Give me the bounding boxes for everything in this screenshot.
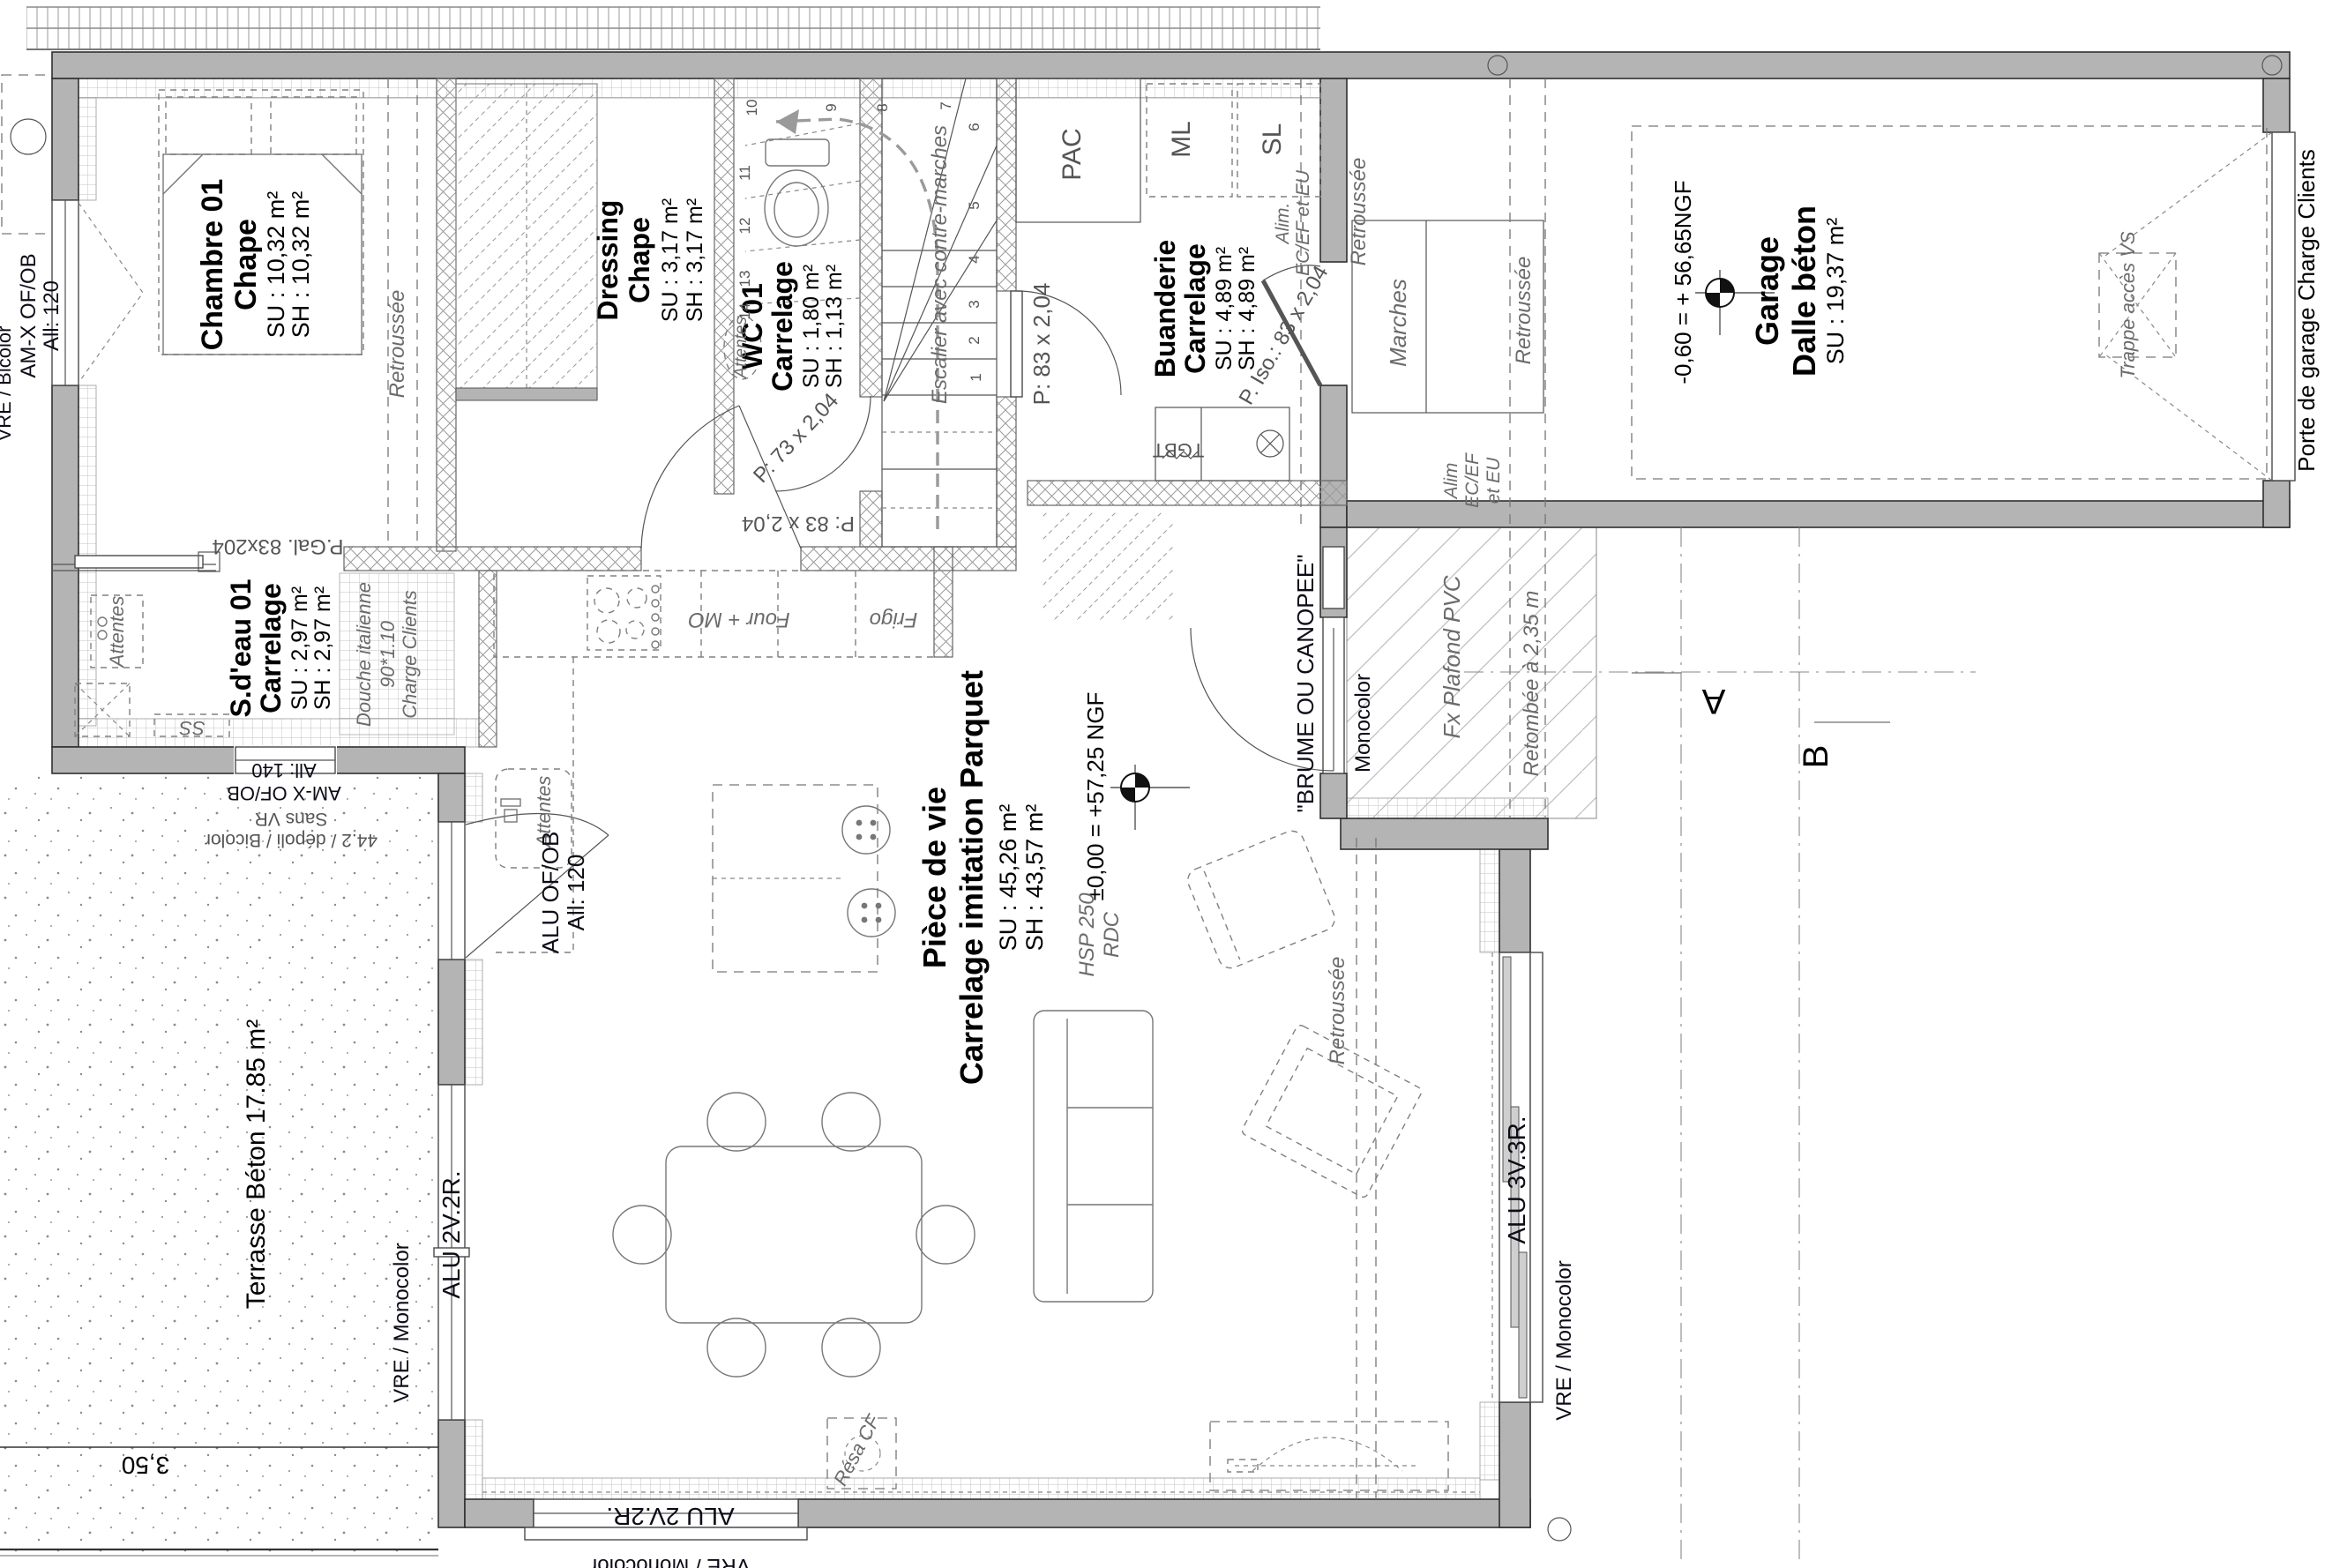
room-wc-finish: Carrelage: [766, 261, 798, 392]
room-living-sh: SH : 43,57 m²: [1021, 804, 1048, 952]
room-wc-sh: SH : 1,13 m²: [822, 265, 847, 388]
armchair: [1185, 827, 1339, 972]
win-amx140-l2: All: 140: [251, 759, 316, 781]
room-chambre-finish: Chape: [229, 219, 263, 310]
stair-num: 14: [736, 303, 753, 320]
ml-label: ML: [1167, 121, 1196, 158]
door-p83-corridor-label: P: 83 x 2,04: [742, 511, 855, 535]
terrace-label: Terrasse Béton 17.85 m²: [242, 1019, 271, 1310]
stair-num: 3: [966, 300, 983, 308]
room-dressing-finish: Chape: [624, 217, 655, 303]
garage-door-label: Porte de garage Charge Clients: [2293, 149, 2320, 472]
room-dressing-su: SU : 3,17 m²: [658, 198, 683, 322]
floor-plan-canvas: Chambre 01 Chape SU : 10,32 m² SH : 10,3…: [0, 0, 2332, 1568]
tgbt-label: TGBT: [1153, 439, 1205, 461]
level-rdc-label: ±0,00 = +57,25 NGF: [1082, 692, 1109, 901]
douche-l1: Douche italienne: [353, 582, 375, 727]
utility-meter-box: [2, 75, 53, 234]
fx-plafond-label: Fx Plafond PVC: [1439, 575, 1465, 738]
stair-num: 9: [823, 103, 840, 111]
garage-interior: [1632, 126, 2295, 481]
wardrobe: [456, 84, 597, 400]
pac-label: PAC: [1058, 128, 1087, 180]
win-aluofob-l1: ALU OF/OB: [537, 832, 564, 954]
stair-num: 12: [736, 218, 753, 235]
resa-cf-label: Résa CF: [829, 1410, 886, 1490]
marches-label: Marches: [1385, 279, 1411, 367]
stair-num: 4: [966, 255, 983, 263]
vre-monocolor-right: VRE / Monocolor: [1552, 1260, 1576, 1420]
monocolor-entry: Monocolor: [1351, 674, 1375, 773]
douche-l3: Charge Clients: [399, 590, 421, 719]
section-b-label: B: [1797, 745, 1835, 769]
axis-point: [1548, 1518, 1571, 1541]
room-dressing-sh: SH : 3,17 m²: [683, 198, 707, 322]
ss-label: SS: [179, 717, 206, 739]
fence-band: [26, 7, 1320, 49]
win-alu3v3r-label: ALU 3V.3R.: [1503, 1116, 1530, 1243]
room-garage-su: SU : 19,37 m²: [1822, 218, 1849, 365]
sofa: [1034, 1011, 1153, 1302]
room-sdeau-su: SU : 2,97 m²: [288, 586, 312, 710]
room-living-title: Pièce de vie: [916, 787, 953, 968]
stair-num: 8: [874, 103, 891, 111]
attentes-wc-label: Attentes: [732, 317, 751, 379]
level-garage-label: -0,60 = + 56,65NGF: [1670, 180, 1696, 384]
stair-num: 13: [736, 271, 753, 287]
hsp-l1: HSP 250: [1075, 892, 1099, 977]
window-entry-sidelight: [1323, 547, 1344, 609]
retombee-label: Retombée à 2,35 m: [1520, 591, 1543, 777]
door-pgal-label: P.Gal. 83x204: [212, 534, 343, 558]
vitrage-l2: Sans VR: [255, 809, 328, 829]
room-buanderie-title: Buanderie: [1149, 240, 1181, 377]
vre-monocolor-left: VRE / Monocolor: [390, 1243, 414, 1402]
four-mo-label: Four + MO: [688, 608, 789, 631]
soffit-hatch: [1041, 511, 1173, 622]
vre-bicolor-left: VRE / Bicolor: [0, 326, 15, 442]
room-chambre-sh: SH : 10,32 m²: [288, 191, 314, 339]
douche-l2: 90*1.10: [377, 620, 399, 688]
dining-table: [613, 1093, 975, 1377]
alim1-l2: EC/EF et EU: [1293, 169, 1313, 276]
wc-toilet: [765, 139, 829, 246]
sl-label: SL: [1258, 123, 1287, 156]
vitrage-l1: 44.2 / dépoli / Bicolor: [205, 830, 377, 850]
retroussee-4: Retroussée: [1326, 957, 1349, 1065]
room-living-su: SU : 45,26 m²: [995, 804, 1021, 952]
alim1-l1: Alim.: [1273, 203, 1293, 246]
room-sdeau-sh: SH : 2,97 m²: [310, 586, 335, 710]
room-buanderie-su: SU : 4,89 m²: [1212, 247, 1237, 370]
escalier-label: Escalier avec contre-marches: [928, 125, 952, 404]
stair-num: 11: [736, 165, 753, 181]
room-chambre-su: SU : 10,32 m²: [263, 191, 289, 339]
bar-stool: [848, 889, 895, 937]
hob: [587, 576, 661, 650]
level-marker-rdc: [1110, 765, 1190, 830]
win-amx140-l1: AM-X OF/OB: [227, 782, 341, 804]
window-amx120: [52, 200, 143, 385]
stair-num: 1: [968, 373, 984, 381]
garage-door: [2272, 132, 2295, 481]
room-dressing-title: Dressing: [592, 200, 624, 321]
attentes-bath-label: Attentes: [106, 596, 128, 669]
alim2-l2: EC/EF: [1462, 452, 1483, 508]
door-p73-label: P: 73 x 2,04: [749, 389, 843, 488]
retroussee-3: Retroussée: [1512, 257, 1536, 365]
section-a-label: A: [1701, 682, 1725, 721]
hsp-l2: RDC: [1100, 911, 1124, 958]
stair-num: 10: [744, 100, 760, 116]
room-buanderie-sh: SH : 4,89 m²: [1235, 247, 1259, 370]
room-wc-su: SU : 1,80 m²: [799, 265, 824, 388]
room-garage-finish: Dalle béton: [1786, 205, 1822, 377]
room-garage-title: Garage: [1749, 236, 1785, 346]
kitchen-island: [713, 785, 895, 972]
trappe-label: Trappe accès VS: [2117, 231, 2139, 378]
room-buanderie-finish: Carrelage: [1179, 243, 1211, 374]
door-entry: [1191, 617, 1344, 773]
win-alu2v2r-bottom-label: ALU 2V.2R.: [606, 1503, 734, 1530]
stair-num: 6: [966, 123, 983, 131]
win-aluofob-l2: All: 120: [563, 855, 589, 931]
vre-monocolor-bottom: VRE / Monocolor: [590, 1554, 750, 1568]
door-entry-label: "BRUME OU CANOPEE": [1292, 555, 1319, 813]
door-p83-hall-label: P: 83 x 2,04: [1028, 283, 1055, 406]
bar-stool: [842, 806, 890, 854]
retroussee-1: Retroussée: [385, 290, 409, 399]
retroussee-2: Retroussée: [1347, 158, 1371, 266]
stair-num: 7: [938, 101, 954, 109]
alim2-l1: Alim: [1441, 463, 1461, 501]
alim2-l3: et EU: [1484, 457, 1504, 504]
terrace-area: [0, 773, 438, 1556]
win-amx120-l2: All: 120: [40, 280, 64, 351]
door-hall-p83: [1011, 291, 1121, 397]
room-living-finish: Carrelage imitation Parquet: [953, 670, 990, 1085]
floor-plan-sheet: Chambre 01 Chape SU : 10,32 m² SH : 10,3…: [0, 0, 2332, 1568]
room-chambre-title: Chambre 01: [196, 179, 229, 351]
win-amx120-l1: AM-X OF/OB: [17, 253, 41, 377]
room-sdeau-finish: Carrelage: [255, 583, 287, 713]
win-alu2v2r-left-label: ALU 2V.2R.: [437, 1170, 465, 1298]
room-sdeau-title: S.d'eau 01: [225, 579, 257, 717]
terrace-dim: 3,50: [122, 1452, 170, 1479]
stair-num: 5: [966, 201, 983, 209]
entry-porch: [1347, 527, 1596, 818]
frigo-label: Frigo: [870, 608, 918, 631]
stair-num: 2: [966, 336, 983, 344]
